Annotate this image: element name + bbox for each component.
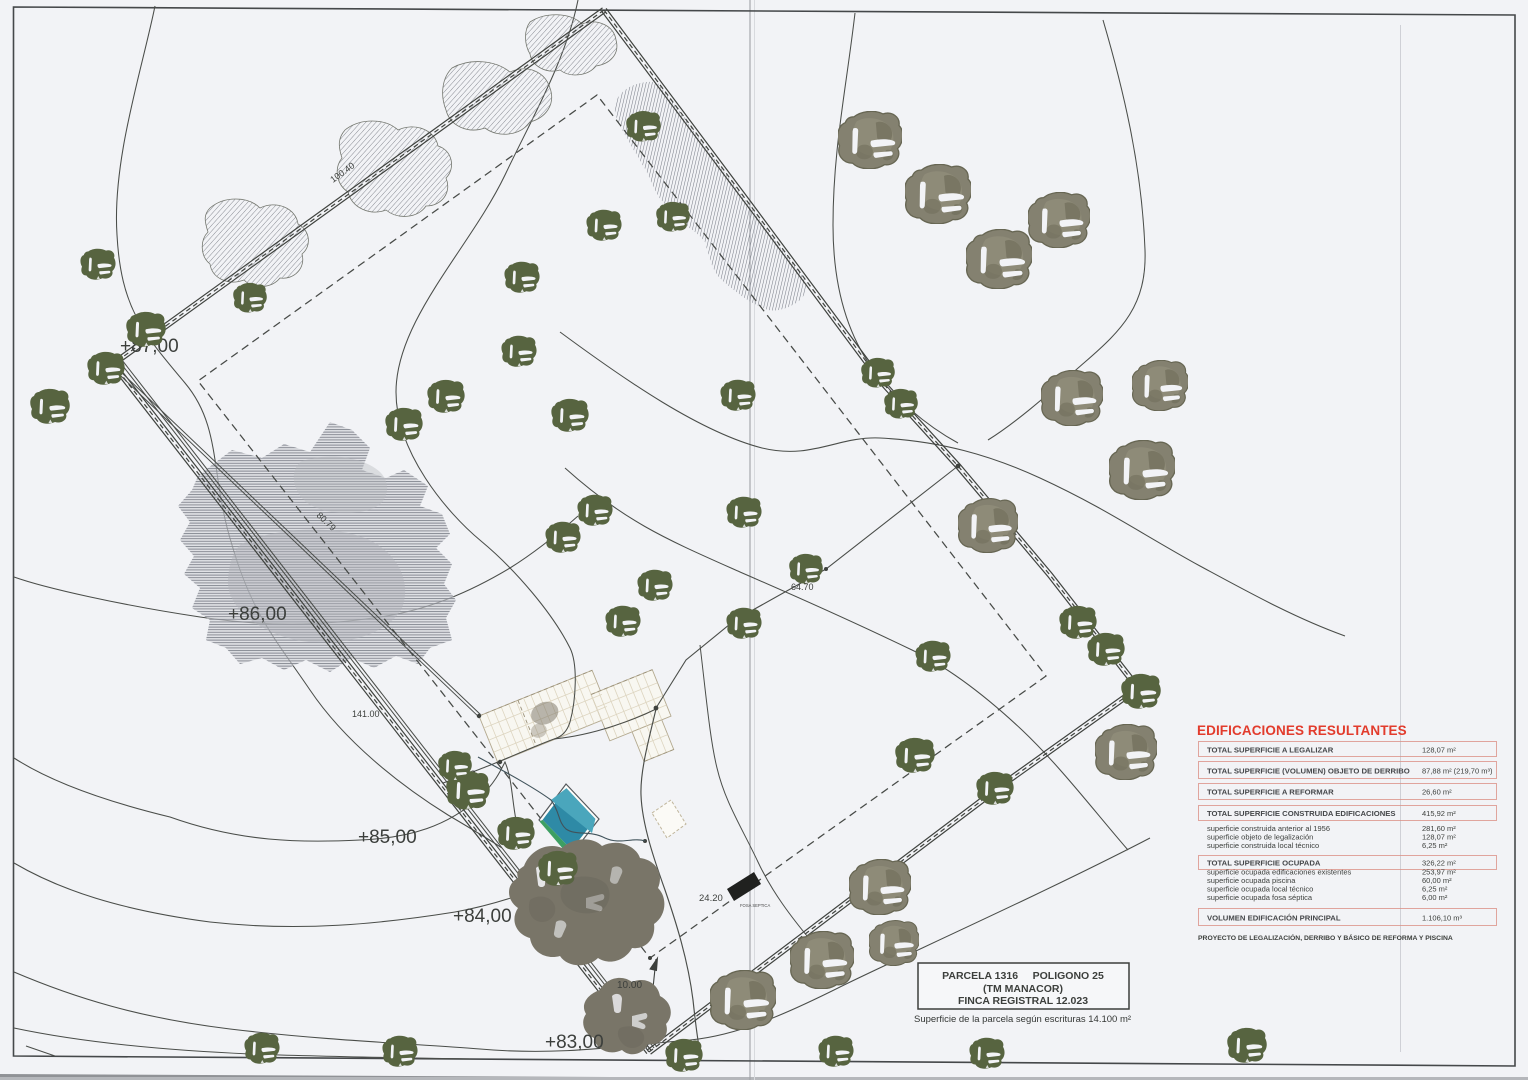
svg-text:EDIFICACIONES RESULTANTES: EDIFICACIONES RESULTANTES [1197, 723, 1407, 738]
svg-text:+86,00: +86,00 [228, 604, 287, 625]
svg-text:TOTAL SUPERFICIE (VOLUMEN) OBJ: TOTAL SUPERFICIE (VOLUMEN) OBJETO DE DER… [1207, 767, 1410, 776]
svg-text:+84,00: +84,00 [453, 906, 512, 927]
svg-text:141.00: 141.00 [352, 709, 380, 719]
svg-text:87,88 m² (219,70 m³): 87,88 m² (219,70 m³) [1422, 767, 1493, 776]
svg-text:64.70: 64.70 [791, 582, 814, 592]
svg-text:VOLUMEN EDIFICACIÓN PRINCIPAL: VOLUMEN EDIFICACIÓN PRINCIPAL [1207, 914, 1341, 923]
svg-text:10.00: 10.00 [617, 980, 642, 991]
svg-text:TOTAL SUPERFICIE OCUPADA: TOTAL SUPERFICIE OCUPADA [1207, 859, 1321, 868]
svg-text:6,00 m²: 6,00 m² [1422, 893, 1448, 902]
svg-text:Superficie de la parcela según: Superficie de la parcela según escritura… [914, 1014, 1131, 1025]
svg-text:(TM MANACOR): (TM MANACOR) [983, 983, 1063, 995]
svg-text:PARCELA 1316 POLIGONO 25: PARCELA 1316 POLIGONO 25 [942, 970, 1104, 982]
svg-text:TOTAL SUPERFICIE A LEGALIZAR: TOTAL SUPERFICIE A LEGALIZAR [1207, 746, 1334, 755]
svg-text:superficie construida local té: superficie construida local técnico [1207, 841, 1319, 850]
svg-text:+83,00: +83,00 [545, 1032, 604, 1053]
svg-text:FINCA REGISTRAL 12.023: FINCA REGISTRAL 12.023 [958, 995, 1088, 1007]
svg-text:128,07 m²: 128,07 m² [1422, 746, 1456, 755]
svg-text:TOTAL SUPERFICIE A REFORMAR: TOTAL SUPERFICIE A REFORMAR [1207, 788, 1334, 797]
svg-text:superficie ocupada fosa séptic: superficie ocupada fosa séptica [1207, 893, 1313, 902]
svg-text:24.20: 24.20 [699, 893, 723, 904]
svg-text:PROYECTO DE LEGALIZACIÓN, DERR: PROYECTO DE LEGALIZACIÓN, DERRIBO Y BÁSI… [1198, 933, 1453, 942]
svg-text:415,92 m²: 415,92 m² [1422, 809, 1456, 818]
svg-text:FOSA SEPTICA: FOSA SEPTICA [740, 903, 770, 908]
svg-text:+85,00: +85,00 [358, 827, 417, 848]
svg-text:TOTAL SUPERFICIE CONSTRUIDA ED: TOTAL SUPERFICIE CONSTRUIDA EDIFICACIONE… [1207, 809, 1396, 818]
svg-text:26,60 m²: 26,60 m² [1422, 788, 1452, 797]
svg-text:6,25 m²: 6,25 m² [1422, 841, 1448, 850]
svg-text:326,22 m²: 326,22 m² [1422, 859, 1456, 868]
svg-text:1.106,10 m³: 1.106,10 m³ [1422, 914, 1463, 923]
